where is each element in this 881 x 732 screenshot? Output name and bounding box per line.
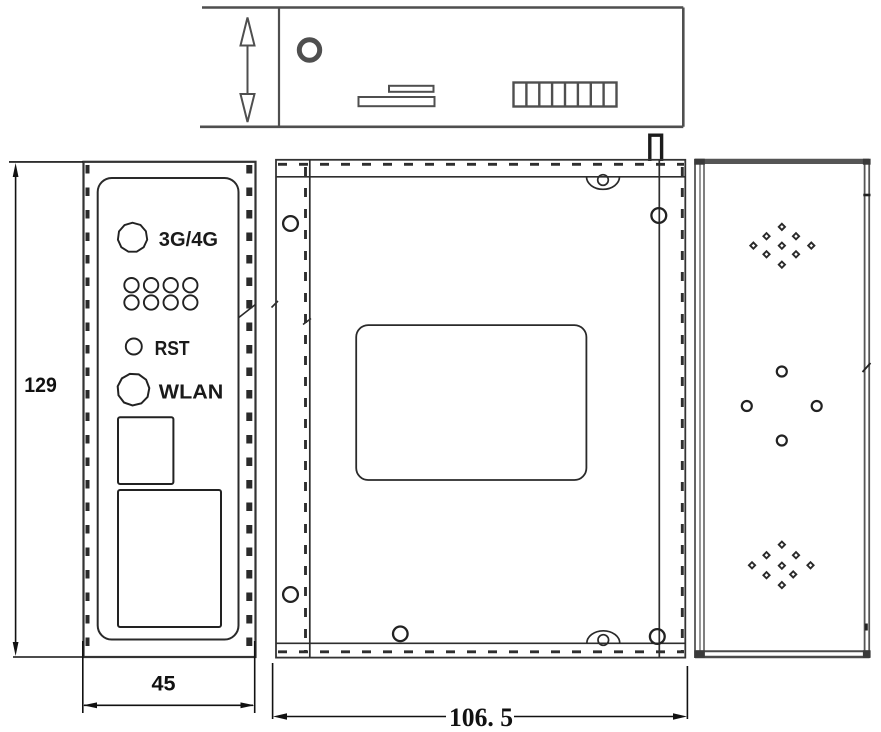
svg-text:RST: RST [155,337,190,360]
svg-text:45: 45 [152,673,176,696]
svg-text:WLAN: WLAN [159,381,224,404]
svg-text:106. 5: 106. 5 [449,703,513,732]
svg-text:129: 129 [24,374,57,397]
svg-text:3G/4G: 3G/4G [159,228,218,251]
